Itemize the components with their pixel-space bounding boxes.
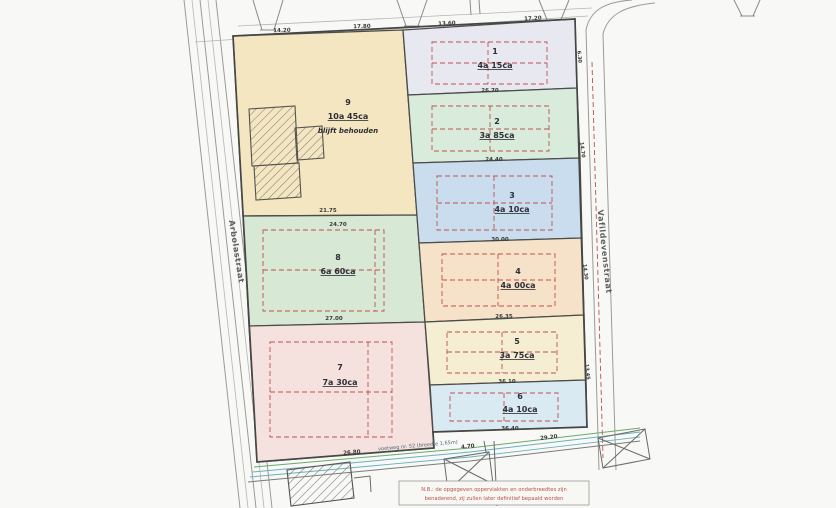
note-text-line-2: benaderend, zij zullen later definitief …	[425, 496, 564, 502]
dim-1-2: 26.70	[481, 88, 499, 94]
parcel-1-area: 4a 15ca	[477, 61, 512, 70]
neighbour-building	[287, 462, 371, 506]
dim-8-top: 24.70	[329, 222, 347, 228]
parcel-9-area: 10a 45ca	[328, 112, 369, 121]
parcel-3-number: 3	[509, 191, 515, 200]
remark-note-box: N.B.: de opgegeven oppervlakten en onder…	[399, 481, 589, 505]
parcel-6-number: 6	[517, 392, 523, 401]
parcel-4-number: 4	[515, 267, 521, 276]
parcel-3-area: 4a 10ca	[494, 205, 529, 214]
parcel-7-region	[249, 322, 434, 462]
dim-8-7: 27.00	[325, 316, 343, 322]
dim-bottom-1: 26.80	[343, 449, 361, 457]
parcel-1-region	[403, 19, 577, 95]
right-street-road-lines	[586, 0, 655, 470]
parcel-5-area: 3a 75ca	[499, 351, 534, 360]
note-text-line-1: N.B.: de opgegeven oppervlakten en onder…	[421, 487, 567, 493]
dim-4-5: 26.35	[495, 314, 513, 320]
parcel-5-region	[425, 315, 586, 385]
parcel-9-note: blijft behouden	[318, 127, 378, 135]
parcel-6-area: 4a 10ca	[502, 405, 537, 414]
dim-top-2: 17.80	[353, 24, 371, 31]
building-hatched-main	[249, 106, 298, 166]
dim-6-bottom: 36.40	[501, 426, 519, 432]
dim-top-3: 13.60	[438, 21, 456, 28]
dim-bottom-3: 29.20	[540, 434, 558, 442]
dim-top-4: 17.20	[524, 16, 542, 23]
parcel-2-area: 3a 85ca	[479, 131, 514, 140]
building-hatched-rear	[254, 163, 301, 200]
parcel-9-number: 9	[345, 98, 351, 107]
parcel-8-area: 6a 60ca	[320, 267, 355, 276]
parcel-regions	[233, 19, 587, 462]
parcel-1-number: 1	[492, 47, 498, 56]
dim-top-1: 14.20	[273, 28, 291, 35]
parcel-5-number: 5	[514, 337, 520, 346]
scanned-subdivision-plan: 1 4a 15ca 2 3a 85ca 3 4a 10ca 4 4a 00ca …	[0, 0, 836, 508]
dim-2-3: 24.40	[485, 157, 503, 163]
parcel-2-number: 2	[494, 117, 500, 126]
dim-bottom-2: 4.70	[461, 443, 475, 450]
shed-box-2	[598, 429, 650, 468]
dim-5-6: 36.10	[498, 379, 516, 385]
plan-drawing: 1 4a 15ca 2 3a 85ca 3 4a 10ca 4 4a 00ca …	[0, 0, 836, 508]
parcel-4-area: 4a 00ca	[500, 281, 535, 290]
parcel-7-area: 7a 30ca	[322, 378, 357, 387]
dim-3-4: 30.00	[491, 237, 509, 243]
dim-9-8: 21.75	[319, 208, 337, 214]
parcel-8-number: 8	[335, 253, 341, 262]
parcel-7-number: 7	[337, 363, 343, 372]
